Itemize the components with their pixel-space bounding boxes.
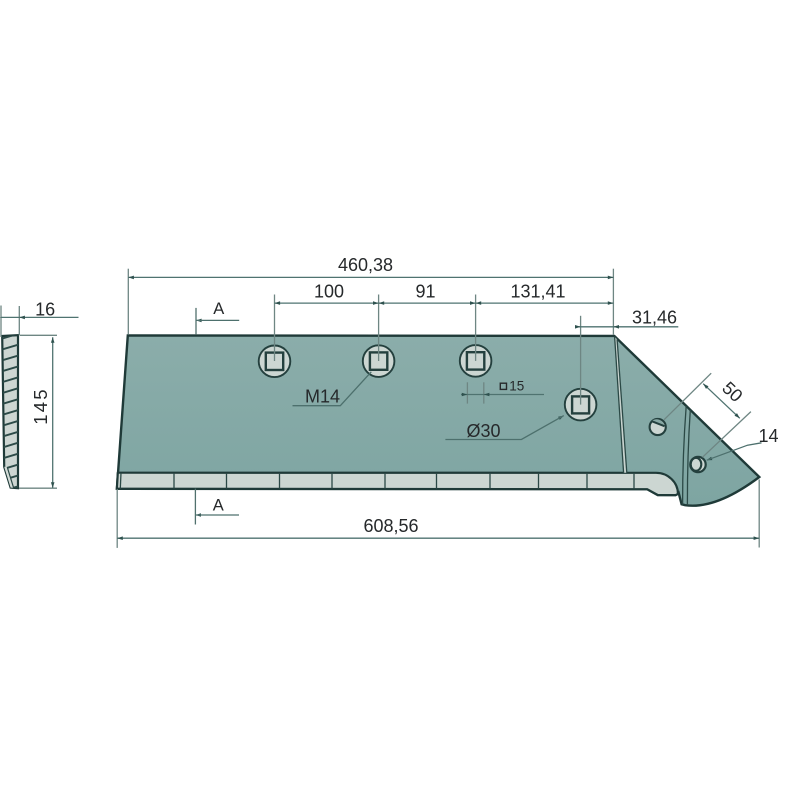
svg-text:31,46: 31,46 xyxy=(632,308,677,328)
svg-text:15: 15 xyxy=(509,379,524,394)
svg-text:145: 145 xyxy=(30,387,51,424)
svg-text:14: 14 xyxy=(758,426,778,446)
svg-text:16: 16 xyxy=(35,300,55,320)
svg-text:A: A xyxy=(213,300,224,318)
svg-text:608,56: 608,56 xyxy=(363,516,418,536)
svg-text:Ø30: Ø30 xyxy=(466,421,500,441)
svg-text:A: A xyxy=(213,497,224,515)
svg-text:131,41: 131,41 xyxy=(510,282,565,302)
svg-text:M14: M14 xyxy=(305,387,340,407)
svg-text:100: 100 xyxy=(314,282,344,302)
svg-text:91: 91 xyxy=(415,282,435,302)
svg-text:460,38: 460,38 xyxy=(338,255,393,275)
